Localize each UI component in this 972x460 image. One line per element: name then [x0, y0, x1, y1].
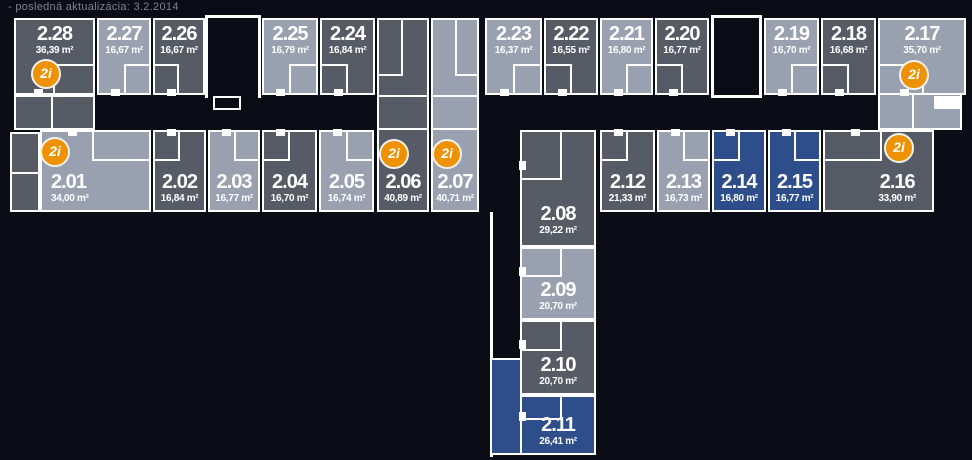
- rooms-left-of-2.01: [10, 132, 40, 212]
- unit-2.02[interactable]: 2.02 16,84 m²: [153, 130, 206, 212]
- unit-label: 2.15 16,77 m²: [770, 172, 819, 204]
- unit-number: 2.15: [770, 172, 819, 192]
- unit-area: 40,89 m²: [379, 194, 427, 204]
- unit-label: 2.22 16,55 m²: [546, 24, 596, 56]
- unit-2.23[interactable]: 2.23 16,37 m²: [485, 18, 542, 95]
- unit-area: 26,41 m²: [522, 437, 594, 447]
- wall-line: [431, 128, 479, 130]
- unit-number: 2.08: [522, 204, 594, 224]
- unit-2.12[interactable]: 2.12 21,33 m²: [600, 130, 655, 212]
- unit-number: 2.07: [433, 172, 477, 192]
- unit-2.16[interactable]: 2.16 33,90 m²: [823, 130, 934, 212]
- unit-area: 29,22 m²: [522, 226, 594, 236]
- unit-number: 2.18: [823, 24, 874, 44]
- unit-area: 16,67 m²: [99, 46, 149, 56]
- unit-2.07[interactable]: 2.07 40,71 m²: [431, 18, 479, 212]
- unit-area: 20,70 m²: [522, 302, 594, 312]
- unit-2.13[interactable]: 2.13 16,73 m²: [657, 130, 710, 212]
- unit-number: 2.27: [99, 24, 149, 44]
- rooms-below-2.28: [14, 95, 95, 130]
- unit-area: 16,73 m²: [659, 194, 708, 204]
- unit-label: 2.02 16,84 m²: [155, 172, 204, 204]
- unit-area: 16,80 m²: [602, 46, 651, 56]
- unit-number: 2.06: [379, 172, 427, 192]
- unit-area: 21,33 m²: [602, 194, 653, 204]
- unit-2.05[interactable]: 2.05 16,74 m²: [319, 130, 374, 212]
- room-type-badge-2.28: 2i: [31, 59, 61, 89]
- unit-2.10[interactable]: 2.10 20,70 m²: [520, 320, 596, 395]
- unit-number: 2.10: [522, 355, 594, 375]
- unit-number: 2.05: [321, 172, 372, 192]
- unit-label: 2.16 33,90 m²: [862, 172, 932, 204]
- wall-line: [377, 128, 429, 130]
- unit-number: 2.26: [155, 24, 203, 44]
- unit-number: 2.20: [657, 24, 707, 44]
- unit-number: 2.11: [522, 415, 594, 435]
- unit-area: 16,67 m²: [155, 46, 203, 56]
- unit-number: 2.13: [659, 172, 708, 192]
- unit-2.14[interactable]: 2.14 16,80 m²: [712, 130, 766, 212]
- unit-area: 16,80 m²: [714, 194, 764, 204]
- unit-number: 2.04: [264, 172, 315, 192]
- unit-2.21[interactable]: 2.21 16,80 m²: [600, 18, 653, 95]
- unit-label: 2.21 16,80 m²: [602, 24, 651, 56]
- unit-number: 2.28: [16, 24, 93, 44]
- room-type-badge-2.01: 2i: [40, 137, 70, 167]
- unit-area: 16,79 m²: [264, 46, 316, 56]
- unit-label: 2.04 16,70 m²: [264, 172, 315, 204]
- unit-2.19[interactable]: 2.19 16,70 m²: [764, 18, 819, 95]
- unit-label: 2.27 16,67 m²: [99, 24, 149, 56]
- terrace-marker: [934, 96, 962, 109]
- unit-number: 2.24: [322, 24, 373, 44]
- unit-2.20[interactable]: 2.20 16,77 m²: [655, 18, 709, 95]
- unit-area: 34,00 m²: [51, 194, 149, 204]
- unit-label: 2.12 21,33 m²: [602, 172, 653, 204]
- unit-area: 33,90 m²: [862, 194, 932, 204]
- unit-label: 2.23 16,37 m²: [487, 24, 540, 56]
- unit-label: 2.14 16,80 m²: [714, 172, 764, 204]
- unit-area: 40,71 m²: [433, 194, 477, 204]
- unit-area: 16,77 m²: [770, 194, 819, 204]
- unit-2.27[interactable]: 2.27 16,67 m²: [97, 18, 151, 95]
- unit-label: 2.07 40,71 m²: [433, 172, 477, 204]
- unit-label: 2.01 34,00 m²: [42, 172, 149, 204]
- wall-line: [51, 97, 53, 128]
- room-type-badge-2.07: 2i: [432, 139, 462, 169]
- unit-2.09[interactable]: 2.09 20,70 m²: [520, 247, 596, 320]
- unit-2.04[interactable]: 2.04 16,70 m²: [262, 130, 317, 212]
- wall-line: [431, 95, 479, 97]
- unit-2.08[interactable]: 2.08 29,22 m²: [520, 130, 596, 247]
- unit-label: 2.20 16,77 m²: [657, 24, 707, 56]
- room-type-badge-2.06: 2i: [379, 139, 409, 169]
- last-update-note: - posledná aktualizácia: 3.2.2014: [8, 1, 179, 13]
- unit-2.06[interactable]: 2.06 40,89 m²: [377, 18, 429, 212]
- unit-label: 2.26 16,67 m²: [155, 24, 203, 56]
- unit-number: 2.22: [546, 24, 596, 44]
- unit-label: 2.10 20,70 m²: [522, 355, 594, 387]
- unit-label: 2.13 16,73 m²: [659, 172, 708, 204]
- unit-area: 16,84 m²: [155, 194, 204, 204]
- wall-line: [912, 95, 914, 128]
- unit-number: 2.01: [51, 172, 149, 192]
- unit-number: 2.12: [602, 172, 653, 192]
- unit-label: 2.18 16,68 m²: [823, 24, 874, 56]
- unit-label: 2.03 16,77 m²: [210, 172, 258, 204]
- unit-area: 16,70 m²: [264, 194, 315, 204]
- unit-label: 2.25 16,79 m²: [264, 24, 316, 56]
- room-type-badge-2.17: 2i: [899, 60, 929, 90]
- unit-label: 2.19 16,70 m²: [766, 24, 817, 56]
- unit-label: 2.17 35,70 m²: [880, 24, 964, 56]
- unit-area: 36,39 m²: [16, 46, 93, 56]
- unit-area: 16,77 m²: [210, 194, 258, 204]
- unit-2.18[interactable]: 2.18 16,68 m²: [821, 18, 876, 95]
- unit-label: 2.09 20,70 m²: [522, 280, 594, 312]
- wall-line: [377, 95, 429, 97]
- unit-number: 2.03: [210, 172, 258, 192]
- void-core-left: [205, 15, 261, 98]
- unit-number: 2.23: [487, 24, 540, 44]
- unit-number: 2.25: [264, 24, 316, 44]
- unit-number: 2.09: [522, 280, 594, 300]
- void-stair-core: [711, 15, 762, 98]
- unit-2.11[interactable]: 2.11 26,41 m²: [520, 395, 596, 455]
- unit-number: 2.16: [862, 172, 932, 192]
- unit-label: 2.08 29,22 m²: [522, 204, 594, 236]
- unit-number: 2.14: [714, 172, 764, 192]
- unit-2.11-annex: [490, 358, 522, 455]
- unit-area: 16,74 m²: [321, 194, 372, 204]
- unit-number: 2.02: [155, 172, 204, 192]
- unit-2.22[interactable]: 2.22 16,55 m²: [544, 18, 598, 95]
- floor-plan: - posledná aktualizácia: 3.2.2014 2.28 3…: [0, 0, 972, 460]
- unit-2.26[interactable]: 2.26 16,67 m²: [153, 18, 205, 95]
- unit-label: 2.11 26,41 m²: [522, 415, 594, 447]
- unit-number: 2.21: [602, 24, 651, 44]
- unit-number: 2.17: [880, 24, 964, 44]
- unit-area: 20,70 m²: [522, 377, 594, 387]
- unit-number: 2.19: [766, 24, 817, 44]
- void-core-left-step: [213, 96, 241, 110]
- unit-label: 2.06 40,89 m²: [379, 172, 427, 204]
- unit-label: 2.05 16,74 m²: [321, 172, 372, 204]
- room-type-badge-2.16: 2i: [884, 133, 914, 163]
- unit-area: 16,84 m²: [322, 46, 373, 56]
- unit-2.25[interactable]: 2.25 16,79 m²: [262, 18, 318, 95]
- unit-area: 16,70 m²: [766, 46, 817, 56]
- unit-2.24[interactable]: 2.24 16,84 m²: [320, 18, 375, 95]
- unit-area: 16,68 m²: [823, 46, 874, 56]
- unit-area: 35,70 m²: [880, 46, 964, 56]
- unit-label: 2.28 36,39 m²: [16, 24, 93, 56]
- wall-line: [12, 172, 38, 174]
- unit-label: 2.24 16,84 m²: [322, 24, 373, 56]
- unit-2.03[interactable]: 2.03 16,77 m²: [208, 130, 260, 212]
- unit-area: 16,37 m²: [487, 46, 540, 56]
- unit-area: 16,55 m²: [546, 46, 596, 56]
- unit-2.15[interactable]: 2.15 16,77 m²: [768, 130, 821, 212]
- unit-area: 16,77 m²: [657, 46, 707, 56]
